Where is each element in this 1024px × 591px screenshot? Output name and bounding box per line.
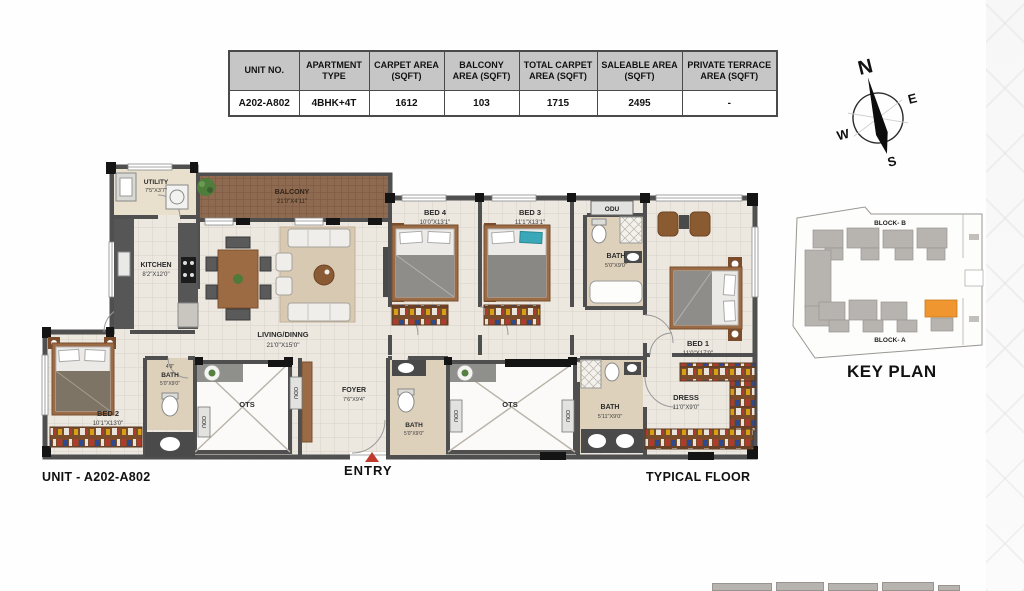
keyplan-highlighted-unit [925,300,957,317]
bed1-label: BED 1 [687,339,709,348]
keyplan-title: KEY PLAN [847,362,937,382]
balcony-floor [197,176,388,220]
foyer-fixtures [302,362,312,442]
bed4-dims: 10'0"X13'1" [420,220,451,226]
table-data-row: A202-A802 4BHK+4T 1612 103 1715 2495 - [229,91,777,117]
compass-south: S [886,153,898,170]
bath-bed2-label: BATH [161,372,179,379]
balcony-dims: 21'0"X4'11" [277,199,307,205]
keyplan-block-b-label: BLOCK- B [874,220,906,227]
col-private-terrace-area: PRIVATE TERRACE AREA (SQFT) [682,51,777,91]
col-carpet-area: CARPET AREA (SQFT) [369,51,444,91]
cell-saleable-area: 2495 [597,91,682,117]
bath-foyer-label: BATH [405,422,423,429]
bed4-furniture [392,223,458,325]
kitchen-dims: 8'2"X12'0" [142,272,169,278]
cell-apartment-type: 4BHK+4T [299,91,369,117]
bath-top-dims: 5'0"X9'0" [605,263,627,269]
cell-total-carpet-area: 1715 [519,91,597,117]
bed3-label: BED 3 [519,208,541,217]
dress-label: DRESS [673,393,699,402]
bottom-partial-buildings [700,583,960,591]
utility-label: UTILITY [144,179,169,186]
odu-label-2: ODU [200,416,206,428]
bath-top-label: BATH [607,253,626,260]
bath-bed2-dims: 5'0"X9'0" [160,381,180,387]
bath-foyer-dims: 5'0"X9'0" [404,431,424,437]
balcony-plant-icon [197,178,215,196]
kitchen-label: KITCHEN [140,262,171,269]
bath-bed1-label: BATH [601,404,620,411]
col-apartment-type: APARTMENT TYPE [299,51,369,91]
living-dims: 21'0"X15'0" [266,342,300,349]
bed2-label: BED 2 [97,409,119,418]
cell-balcony-area: 103 [444,91,519,117]
brochure-page: UNIT NO. APARTMENT TYPE CARPET AREA (SQF… [0,0,1024,591]
key-plan: BLOCK- B BLOCK- A [785,198,1000,366]
dress-dims: 11'0"X9'0" [673,405,700,411]
bed2-dims: 10'1"X13'0" [93,421,124,427]
table-header-row: UNIT NO. APARTMENT TYPE CARPET AREA (SQF… [229,51,777,91]
ots1-label: OTS [239,400,254,409]
col-balcony-area: BALCONY AREA (SQFT) [444,51,519,91]
bed3-dims: 11'1"X13'1" [515,220,545,226]
typical-floor-caption: TYPICAL FLOOR [646,470,750,484]
col-saleable-area: SALEABLE AREA (SQFT) [597,51,682,91]
utility-dims: 7'5"X3'7" [145,188,167,194]
odu-label-4: ODU [564,410,570,422]
compass-east: E [906,90,918,107]
cell-unit-no: A202-A802 [229,91,299,117]
entry-arrow-icon [365,452,379,462]
odu-top-label: ODU [605,206,620,213]
compass-west: W [835,126,851,144]
foyer-dims: 7'6"X9'4" [343,397,365,403]
unit-spec-table: UNIT NO. APARTMENT TYPE CARPET AREA (SQF… [228,50,778,117]
compass-north: N [856,56,875,80]
odu-label-3: ODU [452,410,458,422]
cell-carpet-area: 1612 [369,91,444,117]
balcony-label: BALCONY [275,189,310,196]
compass: N E W S [826,56,934,170]
bath-bed1-dims: 5'11"X9'0" [598,414,623,420]
bath-bed2-note: 4'9" [166,364,175,370]
floor-plan: UTILITY 7'5"X3'7" BALCONY 21'0"X4'11" KI… [40,157,760,462]
keyplan-block-a-label: BLOCK- A [874,337,906,344]
unit-caption: UNIT - A202-A802 [42,470,151,484]
bed3-furniture [484,223,550,325]
foyer-label: FOYER [342,387,366,394]
bed1-dims: 11'0"X17'0" [683,351,713,357]
cell-private-terrace-area: - [682,91,777,117]
ots2-label: OTS [502,400,517,409]
bed4-label: BED 4 [424,208,447,217]
living-label: LIVING/DINNG [257,330,308,339]
col-total-carpet-area: TOTAL CARPET AREA (SQFT) [519,51,597,91]
odu-label-1: ODU [292,387,298,399]
entry-label: ENTRY [344,463,393,478]
col-unit-no: UNIT NO. [229,51,299,91]
